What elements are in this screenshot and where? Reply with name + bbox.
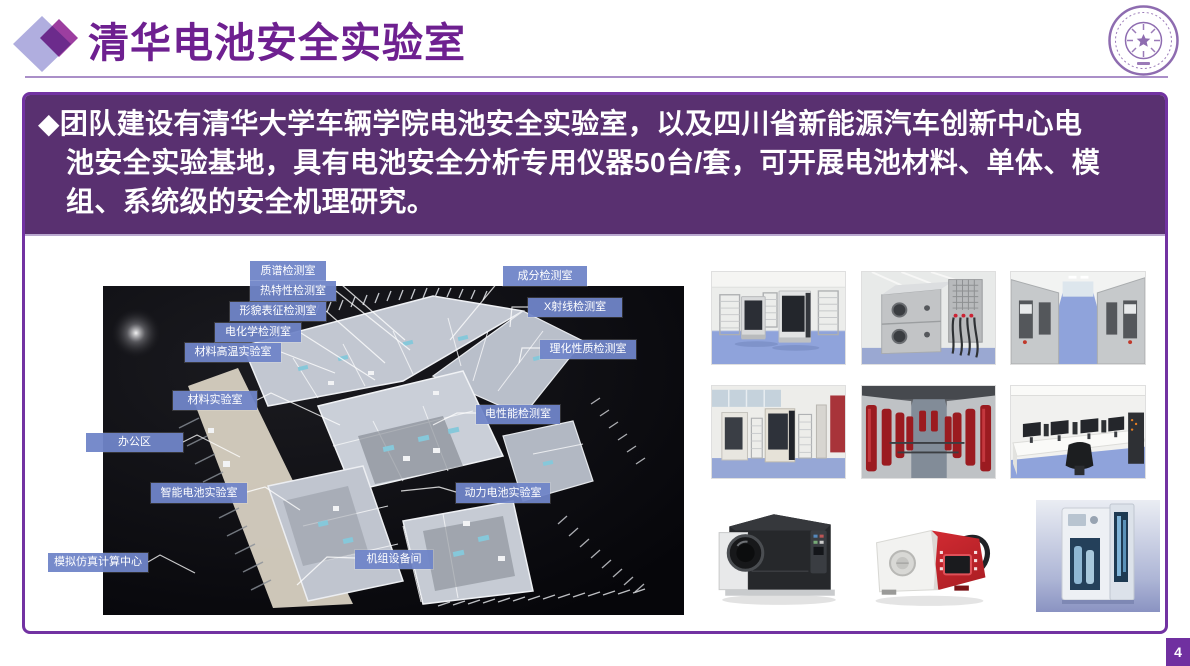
floorplan-label: 智能电池实验室 (151, 483, 247, 503)
summary-box: ◆团队建设有清华大学车辆学院电池安全实验室，以及四川省新能源汽车创新中心电 池安… (25, 95, 1165, 236)
floorplan-label: X射线检测室 (528, 298, 622, 317)
floorplan-label: 理化性质检测室 (540, 340, 636, 359)
floorplan-label: 热特性检测室 (250, 281, 336, 301)
floorplan-label: 成分检测室 (503, 266, 587, 286)
university-seal-icon (1107, 4, 1180, 77)
photo-battery-cycling-chamber-room (711, 271, 846, 365)
floorplan-label: 模拟仿真计算中心 (48, 553, 148, 572)
photo-battery-test-cabinets-room (711, 385, 846, 479)
floorplan-label: 电化学检测室 (215, 323, 301, 342)
photo-simulation-computer-room (1010, 385, 1146, 479)
title-underline (25, 76, 1168, 78)
summary-line-3: 组、系统级的安全机理研究。 (38, 182, 1155, 221)
floorplan-label: 电性能检测室 (476, 405, 560, 424)
page-title: 清华电池安全实验室 (88, 16, 466, 70)
photo-fire-suppression-cylinder-corridor (861, 385, 996, 479)
floorplan-label: 机组设备间 (355, 550, 433, 569)
floorplan-label: 材料实验室 (173, 391, 257, 410)
photo-test-chamber-corridor (1010, 271, 1146, 365)
floorplan-label: 质谱检测室 (250, 261, 326, 281)
photo-mass-spectrometer-instrument (711, 500, 848, 610)
page-number: 4 (1166, 638, 1190, 666)
content-frame: ◆团队建设有清华大学车辆学院电池安全实验室，以及四川省新能源汽车创新中心电 池安… (22, 92, 1168, 634)
floorplan-label: 材料高温实验室 (185, 343, 281, 362)
floorplan-label: 动力电池实验室 (456, 483, 550, 503)
summary-line-2: 池安全实验基地，具有电池安全分析专用仪器50台/套，可开展电池材料、单体、模 (38, 143, 1155, 182)
summary-line-1: ◆团队建设有清华大学车辆学院电池安全实验室，以及四川省新能源汽车创新中心电 (38, 104, 1155, 143)
photo-particle-size-analyzer (1036, 500, 1160, 612)
photo-portable-analyzer-red (861, 500, 1001, 610)
photo-environmental-test-chambers (861, 271, 996, 365)
slide: 清华电池安全实验室 ◆团队建设有清华大学车辆学院电池安全实验室，以及四川省新能源… (0, 0, 1190, 666)
floorplan-label: 办公区 (86, 433, 183, 452)
floorplan-label: 形貌表征检测室 (230, 302, 326, 321)
